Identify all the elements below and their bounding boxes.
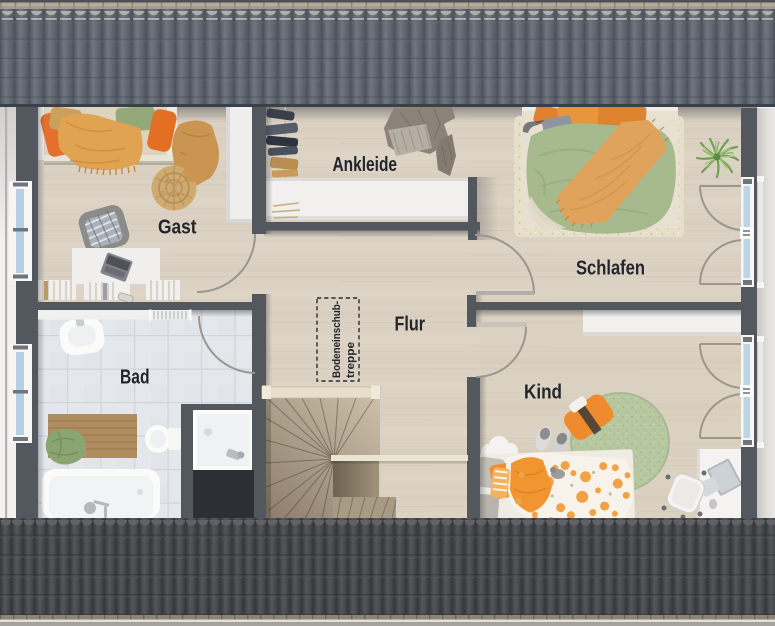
svg-text:Schlafen: Schlafen [576,258,645,280]
svg-text:Flur: Flur [395,313,426,336]
svg-text:Bad: Bad [120,367,150,389]
svg-text:Kind: Kind [524,382,562,404]
svg-text:treppe: treppe [345,342,357,378]
svg-text:Bodeneinschub-: Bodeneinschub- [331,301,343,378]
svg-text:Gast: Gast [158,217,197,239]
svg-text:Ankleide: Ankleide [333,154,398,176]
